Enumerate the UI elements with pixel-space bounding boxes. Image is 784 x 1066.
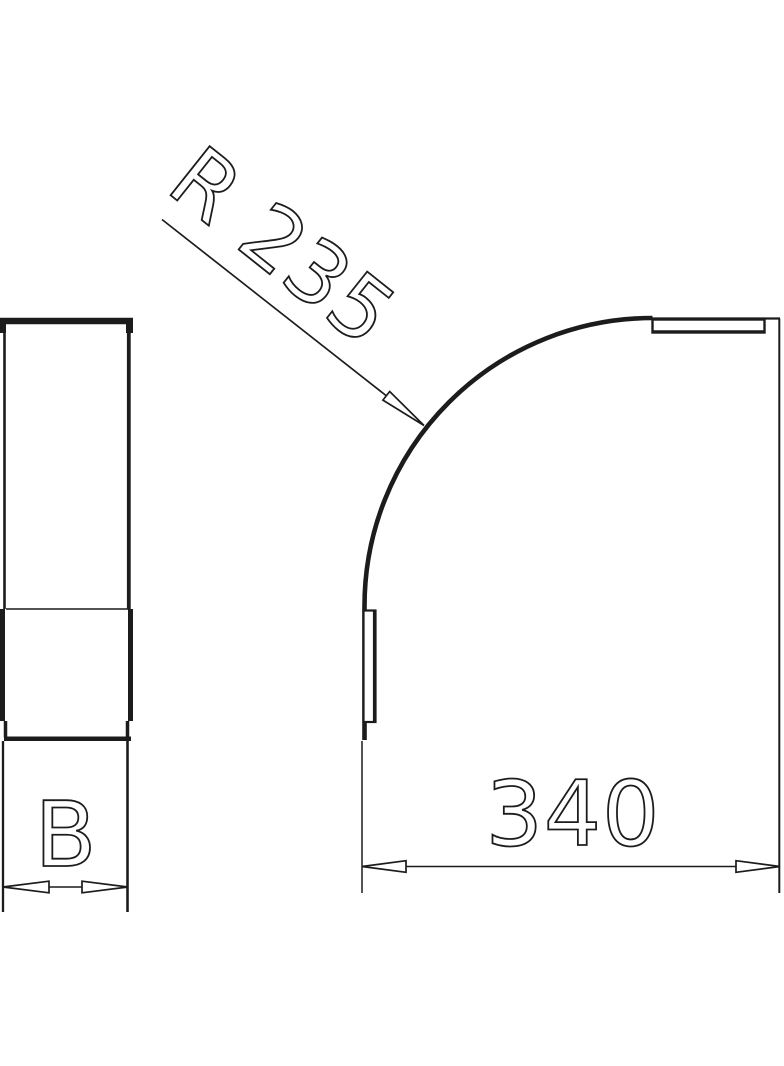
radius-label: R 235 <box>151 128 414 366</box>
side-view: B <box>0 321 133 912</box>
length-dimension-arrow-right <box>736 861 780 873</box>
length-dimension-arrow-left <box>362 861 406 873</box>
length-dimension-label: 340 <box>486 762 661 867</box>
bend-profile <box>365 318 653 740</box>
width-dimension: B <box>3 783 128 893</box>
width-dimension-label: B <box>35 783 98 888</box>
radius-leader-arrow <box>383 392 424 426</box>
length-dimension: 340 <box>362 741 780 893</box>
front-view: R 235 340 <box>151 128 780 893</box>
radius-annotation: R 235 <box>151 128 424 425</box>
technical-drawing-canvas: B R 235 340 <box>0 0 784 1066</box>
